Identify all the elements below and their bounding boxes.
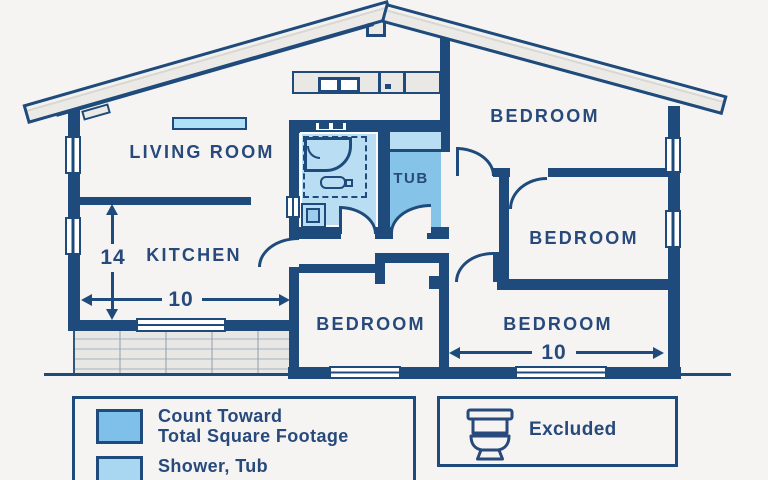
wall xyxy=(375,253,449,263)
legend-label-counted-line2: Total Square Footage xyxy=(158,427,349,447)
door-arc-bedroom-middle xyxy=(509,177,547,209)
wall xyxy=(289,266,299,372)
legend-swatch-counted xyxy=(96,409,143,444)
room-label-kitchen: KITCHEN xyxy=(124,245,264,266)
window xyxy=(286,196,300,218)
arrowhead-right xyxy=(279,294,290,306)
wall xyxy=(497,279,680,290)
door-arc-bedroom-bottom-right xyxy=(455,252,493,282)
tub-deck xyxy=(390,132,441,150)
roof-slope-right xyxy=(381,3,728,115)
wall xyxy=(493,168,510,177)
window xyxy=(65,217,81,255)
room-label-bedroom-middle: BEDROOM xyxy=(514,228,654,249)
roof-slope-left xyxy=(22,0,393,124)
room-label-bedroom-top: BEDROOM xyxy=(475,106,615,127)
wall xyxy=(493,252,503,282)
arrowhead-down xyxy=(106,309,118,320)
living-room-window xyxy=(172,117,247,130)
dim-line xyxy=(202,298,282,301)
toilet-icon xyxy=(464,404,516,462)
bar-dot xyxy=(385,84,391,89)
window xyxy=(665,137,681,173)
floor-plan-diagram: 14 10 10 LIVING ROOM KITCHEN BEDROOM BED… xyxy=(0,0,768,480)
room-label-living-room: LIVING ROOM xyxy=(112,142,292,163)
legend-label-shower-tub: Shower, Tub xyxy=(158,457,268,477)
legend-label-excluded: Excluded xyxy=(529,420,617,440)
legend-swatch-shower-tub xyxy=(96,456,143,480)
window xyxy=(515,366,607,379)
room-label-tub: TUB xyxy=(386,170,436,187)
bar-divider xyxy=(378,73,381,92)
bar-window xyxy=(318,77,360,93)
window xyxy=(65,136,81,174)
arrowhead-right xyxy=(653,347,664,359)
arrowhead-left xyxy=(449,347,460,359)
wall xyxy=(429,276,439,289)
window xyxy=(329,366,401,379)
sink-fixture xyxy=(320,176,346,189)
dim-line xyxy=(90,298,162,301)
dim-line xyxy=(111,272,114,314)
dim-line xyxy=(111,212,114,244)
door-arc-bedroom-top xyxy=(456,147,495,176)
room-label-bedroom-bottom-center: BEDROOM xyxy=(301,314,441,335)
legend-label-counted-line1: Count Toward xyxy=(158,407,349,427)
legend-label-counted: Count Toward Total Square Footage xyxy=(158,407,349,446)
dim-line xyxy=(458,351,532,354)
dim-bedroom-width: 10 xyxy=(534,341,574,365)
room-label-bedroom-bottom-right: BEDROOM xyxy=(488,314,628,335)
sink-tap xyxy=(345,179,353,187)
toilet-plan-bowl xyxy=(306,208,320,223)
porch-deck xyxy=(73,330,294,373)
window xyxy=(136,318,226,332)
window-pane xyxy=(319,123,329,129)
window xyxy=(665,210,681,248)
dim-kitchen-width: 10 xyxy=(161,288,201,312)
wall xyxy=(440,34,450,152)
bar-divider xyxy=(403,73,406,92)
wall xyxy=(292,264,381,273)
window-pane xyxy=(333,123,343,129)
arrowhead-left xyxy=(81,294,92,306)
arrowhead-up xyxy=(106,204,118,215)
wall xyxy=(76,197,251,205)
wall xyxy=(548,168,680,177)
door-arc-kitchen xyxy=(258,237,299,267)
clerestory-bar xyxy=(292,71,441,94)
wall xyxy=(289,120,299,240)
dim-line xyxy=(576,351,656,354)
